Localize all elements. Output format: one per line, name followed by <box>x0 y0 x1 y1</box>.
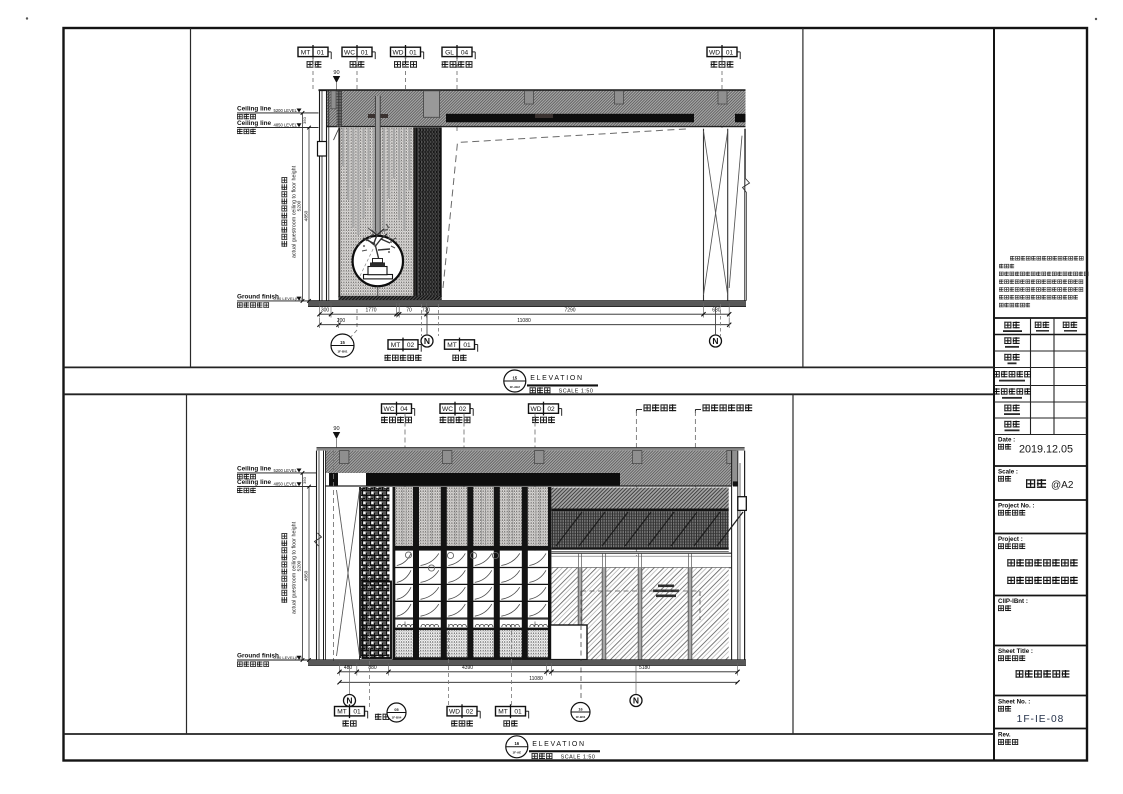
svg-text:Ceiling line: Ceiling line <box>237 479 272 486</box>
svg-text:ClIP-IBnt :: ClIP-IBnt : <box>998 598 1028 605</box>
svg-text:200: 200 <box>337 318 346 324</box>
svg-text:5200 LEVEL: 5200 LEVEL <box>274 108 298 113</box>
svg-text:1F-AE: 1F-AE <box>512 751 521 755</box>
svg-text:WC: WC <box>442 406 453 413</box>
svg-text:SCALE 1:50: SCALE 1:50 <box>559 389 594 395</box>
svg-text:ELEVATION: ELEVATION <box>532 741 586 748</box>
svg-text:480: 480 <box>344 665 353 671</box>
svg-text:Project :: Project : <box>998 536 1023 543</box>
svg-text:16: 16 <box>578 707 582 711</box>
svg-text:5200: 5200 <box>297 560 303 571</box>
svg-text:630: 630 <box>712 308 721 314</box>
svg-text:1F-B01: 1F-B01 <box>576 715 586 719</box>
svg-text:Ceiling line: Ceiling line <box>237 120 272 127</box>
svg-text:300: 300 <box>321 308 330 314</box>
svg-text:720: 720 <box>422 308 431 314</box>
svg-text:01: 01 <box>353 709 361 716</box>
svg-text:Sheet Title :: Sheet Title : <box>998 648 1033 655</box>
svg-text:WD: WD <box>393 49 404 56</box>
svg-text:70: 70 <box>406 308 412 314</box>
svg-text:MT: MT <box>391 342 401 349</box>
svg-text:1F-IE-08: 1F-IE-08 <box>1017 714 1065 725</box>
svg-text:1F-B04: 1F-B04 <box>392 715 402 719</box>
svg-text:90: 90 <box>333 426 339 432</box>
svg-text:01: 01 <box>463 342 471 349</box>
svg-text:02: 02 <box>459 406 467 413</box>
svg-text:GL: GL <box>445 49 454 56</box>
svg-text:actual guestroom ceiling to fl: actual guestroom ceiling to floor height <box>292 165 298 258</box>
svg-text:5200 LEVEL: 5200 LEVEL <box>274 468 298 473</box>
svg-text:4850 LEVEL: 4850 LEVEL <box>274 481 298 486</box>
svg-text:1F-B01: 1F-B01 <box>337 350 348 354</box>
svg-text:01: 01 <box>361 49 369 56</box>
svg-text:16: 16 <box>514 741 519 746</box>
svg-text:02: 02 <box>547 406 555 413</box>
svg-text:05: 05 <box>394 708 398 712</box>
svg-text:90: 90 <box>333 70 339 76</box>
svg-text:Rev.: Rev. <box>998 732 1011 739</box>
svg-text:WD: WD <box>531 406 542 413</box>
svg-text:04: 04 <box>461 49 469 56</box>
svg-text:WD: WD <box>709 49 720 56</box>
svg-text:4390: 4390 <box>462 665 473 671</box>
svg-text:Scale :: Scale : <box>998 469 1018 476</box>
svg-text:Date :: Date : <box>998 437 1015 444</box>
svg-text:Ceiling line: Ceiling line <box>237 466 272 473</box>
svg-text:N: N <box>424 336 430 346</box>
svg-text:11080: 11080 <box>517 318 531 324</box>
svg-text:Project No. :: Project No. : <box>998 503 1034 510</box>
svg-text:MT: MT <box>447 342 457 349</box>
svg-text:5180: 5180 <box>639 665 650 671</box>
svg-text:4850 LEVEL: 4850 LEVEL <box>274 122 298 127</box>
svg-text:11080: 11080 <box>529 676 543 682</box>
svg-text:Sheet No. :: Sheet No. : <box>998 699 1030 706</box>
svg-text:01: 01 <box>726 49 734 56</box>
svg-text:WC: WC <box>344 49 355 56</box>
svg-text:2019.12.05: 2019.12.05 <box>1019 444 1073 456</box>
svg-text:4850: 4850 <box>303 210 309 221</box>
svg-text:04: 04 <box>400 406 408 413</box>
svg-text:350: 350 <box>302 476 307 483</box>
svg-text:WC: WC <box>384 406 395 413</box>
svg-text:7290: 7290 <box>564 308 575 314</box>
svg-text:01: 01 <box>317 49 325 56</box>
svg-text:01: 01 <box>514 709 522 716</box>
svg-text:1770: 1770 <box>365 308 376 314</box>
svg-text:01: 01 <box>409 49 417 56</box>
svg-text:1F-AE2: 1F-AE2 <box>510 385 521 389</box>
svg-text:WD: WD <box>449 709 460 716</box>
svg-text:actual guestroom ceiling to fl: actual guestroom ceiling to floor height <box>292 521 298 614</box>
svg-text:N: N <box>712 336 718 346</box>
svg-text:5200: 5200 <box>297 200 303 211</box>
svg-text:15: 15 <box>512 375 517 380</box>
svg-text:N: N <box>633 696 639 706</box>
svg-text:350: 350 <box>302 116 307 123</box>
svg-text:02: 02 <box>407 342 415 349</box>
svg-text:SCALE 1:50: SCALE 1:50 <box>561 754 596 760</box>
svg-text:Ceiling line: Ceiling line <box>237 106 272 113</box>
svg-text:@A2: @A2 <box>1051 480 1074 491</box>
svg-text:15: 15 <box>340 340 345 345</box>
svg-text:MT: MT <box>337 709 347 716</box>
svg-text:MT: MT <box>301 49 311 56</box>
svg-text:ELEVATION: ELEVATION <box>530 375 584 382</box>
svg-text:MT: MT <box>498 709 508 716</box>
svg-text:02: 02 <box>466 709 474 716</box>
svg-text:4850: 4850 <box>303 570 309 581</box>
svg-text:N: N <box>346 696 352 706</box>
